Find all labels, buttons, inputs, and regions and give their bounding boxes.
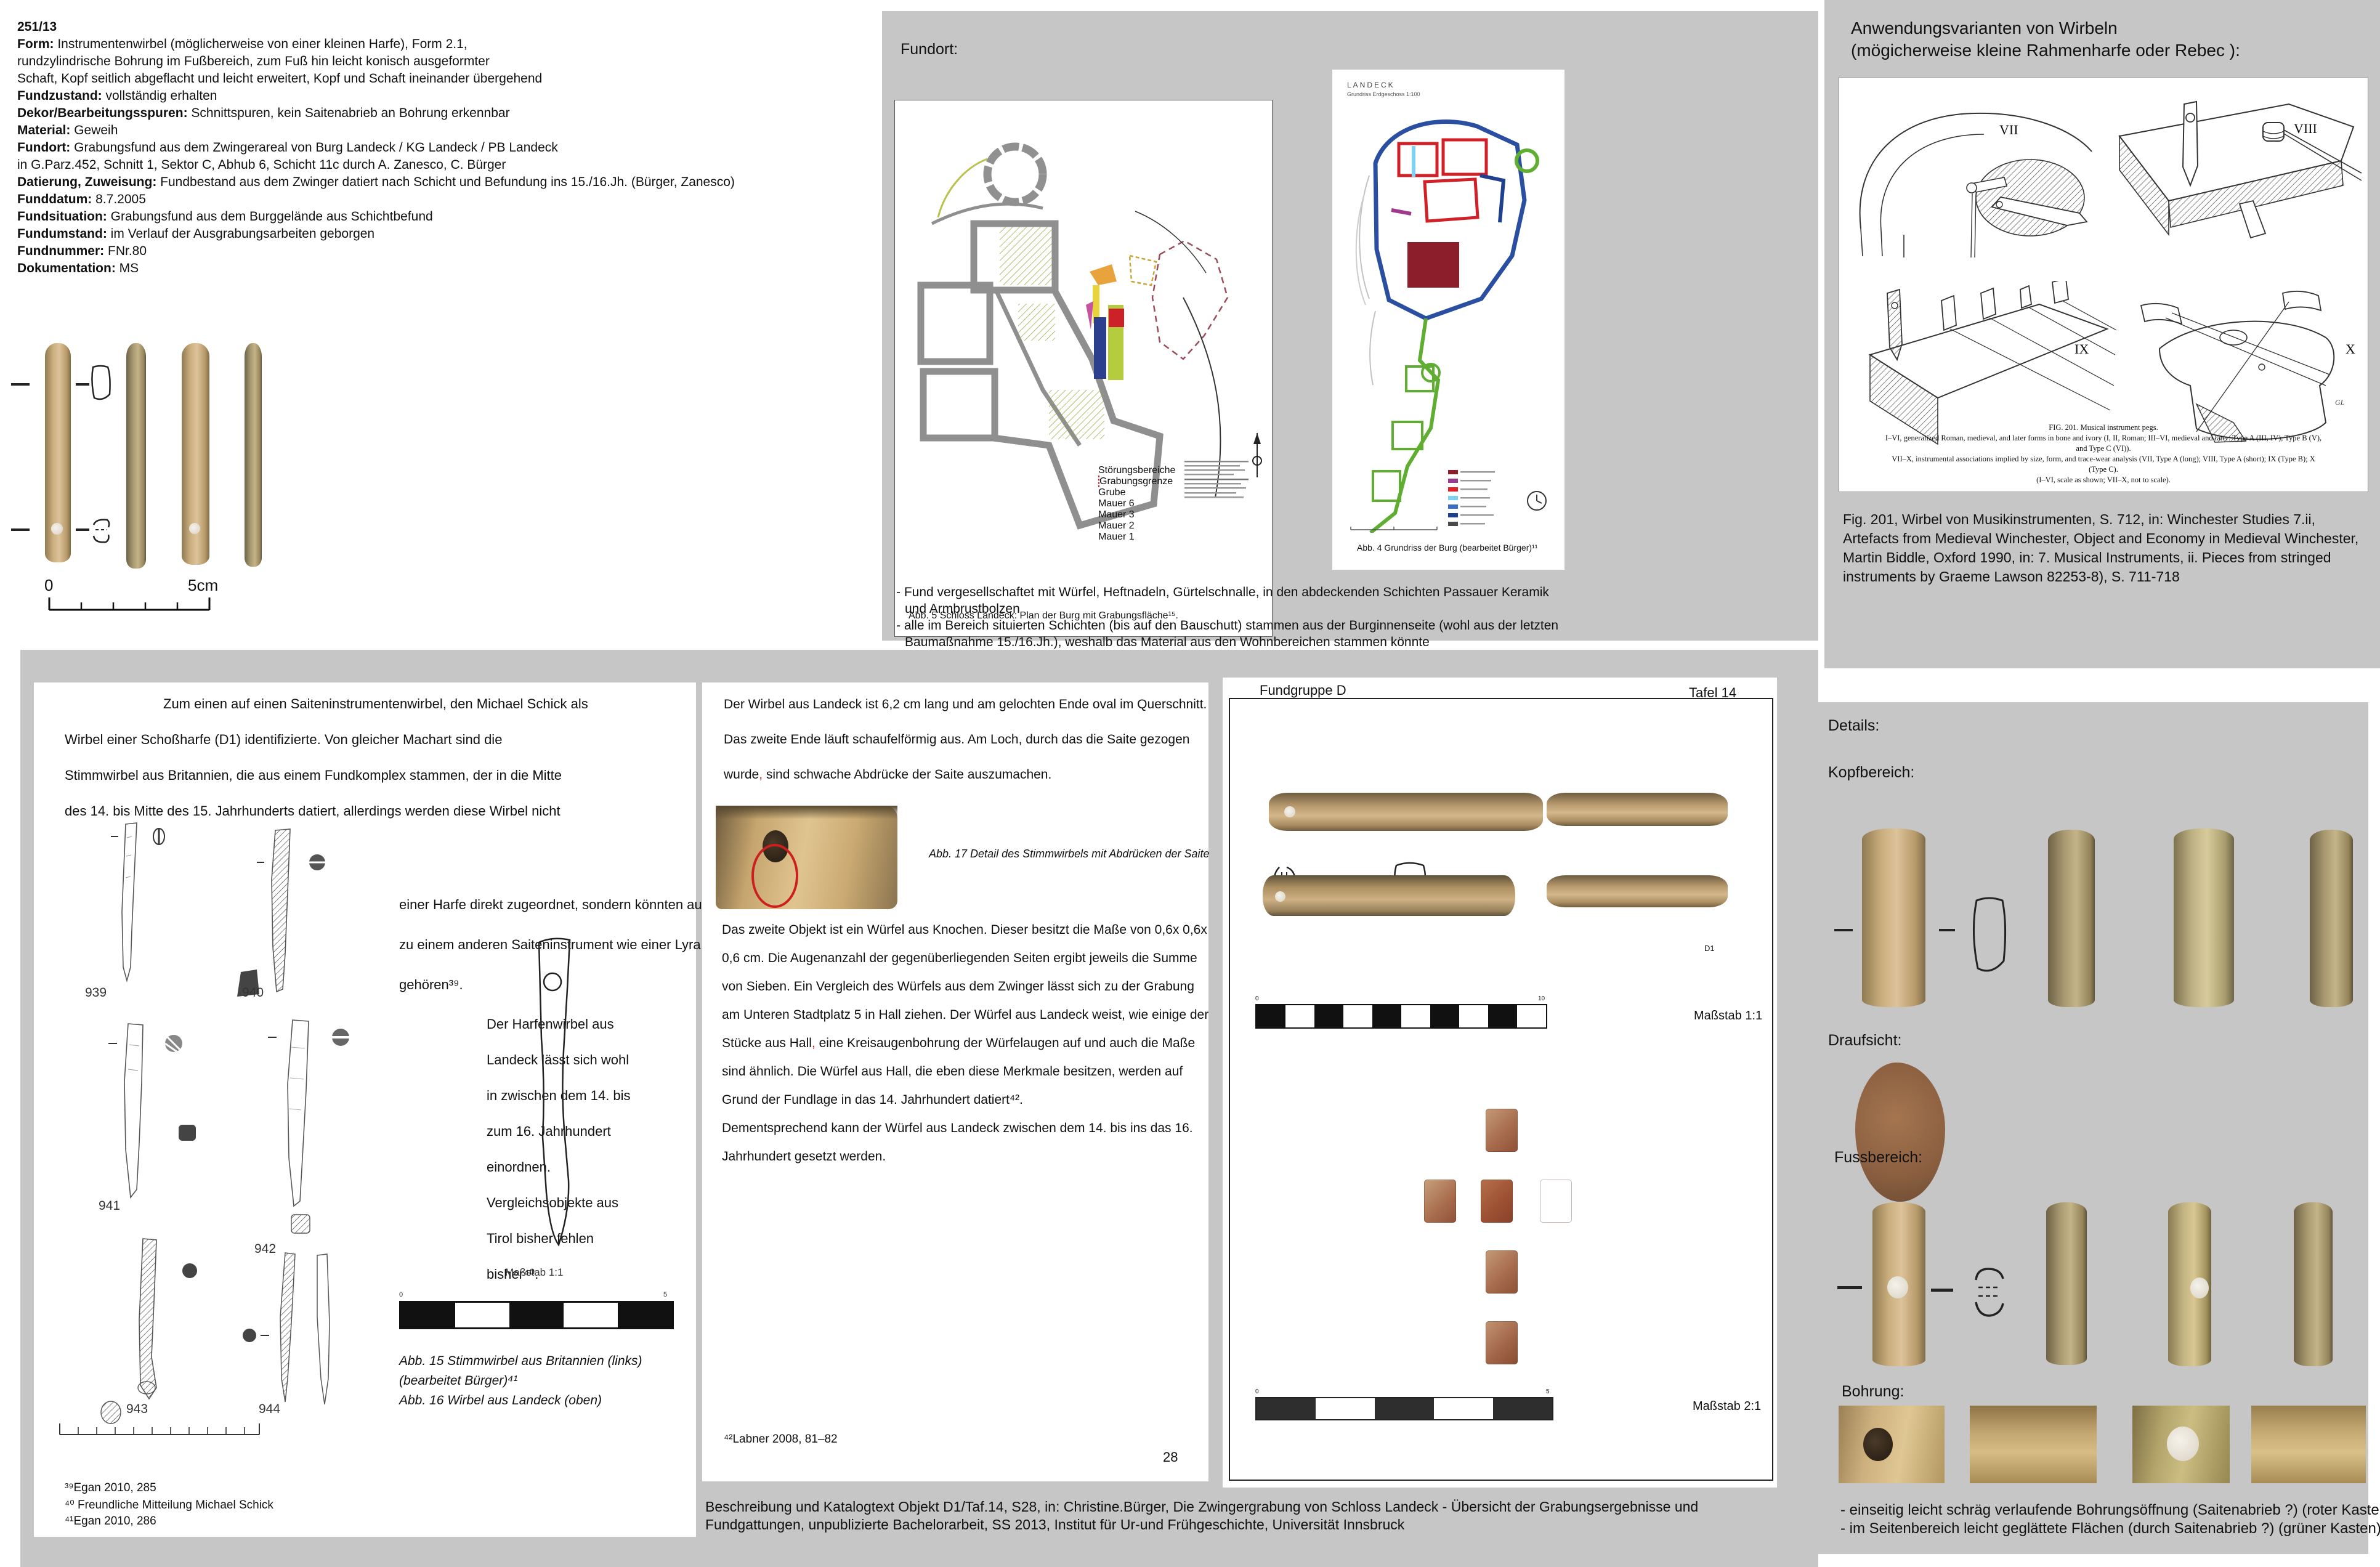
bar-seg — [1434, 1398, 1493, 1419]
kopf-photo-3 — [2174, 828, 2234, 1007]
numeral-x: X — [2346, 341, 2355, 357]
legend-item: Mauer 3 — [1098, 509, 1209, 520]
drawing-label-943: 943 — [126, 1402, 148, 1417]
bottom-caption: Beschreibung und Katalogtext Objekt D1/T… — [705, 1498, 1698, 1534]
fig-caption-line: (I–VI, scale as shown; VII–X, not to sca… — [1839, 475, 2368, 485]
fig-caption-line: FIG. 201. Musical instrument pegs. — [1839, 423, 2368, 433]
bohrung-label: Bohrung: — [1842, 1383, 1904, 1401]
kopfbereich-label: Kopfbereich: — [1828, 764, 1914, 782]
bar-seg — [1459, 1005, 1488, 1027]
photo-scale-ruler — [48, 596, 213, 615]
paragraph-line: gehören³⁹. — [399, 977, 463, 993]
credit-line: Artefacts from Medieval Winchester, Obje… — [1843, 529, 2358, 548]
tafel-scale-bar-2 — [1255, 1397, 1553, 1420]
drawing-944 — [231, 1249, 354, 1422]
bohrung-photo-1 — [1839, 1406, 1945, 1483]
peg-photo-front — [45, 343, 71, 562]
details-note-1: - einseitig leicht schräg verlaufende Bo… — [1840, 1502, 2380, 1519]
paragraph-line: am Unteren Stadtplatz 5 in Hall ziehen. … — [722, 1008, 1208, 1022]
bar-seg — [1316, 1398, 1375, 1419]
paragraph-line: von Sieben. Ein Vergleich des Würfels au… — [722, 979, 1194, 994]
catalog-line: Fundnummer: FNr.80 — [17, 243, 735, 260]
tafel-scale-bar-1 — [1255, 1004, 1547, 1029]
section-dash — [1931, 1289, 1953, 1292]
legend-item: Grube — [1098, 487, 1209, 498]
bar-seg — [618, 1303, 672, 1327]
photo-edge-shadow — [716, 806, 897, 819]
catalog-line: in G.Parz.452, Schnitt 1, Sektor C, Abhu… — [17, 156, 735, 174]
catalog-line: Fundort: Grabungsfund aus dem Zwingerare… — [17, 139, 735, 156]
bullet-line: Baumaßnahme 15./16.Jh.), weshalb das Mat… — [896, 634, 1558, 650]
figure-highlight-box — [1842, 108, 2362, 267]
credit-line: Martin Biddle, Oxford 1990, in: 7. Music… — [1843, 548, 2358, 567]
fuss-photo-4 — [2294, 1202, 2333, 1366]
catalog-line: Fundzustand: vollständig erhalten — [17, 87, 735, 105]
small-ruler — [59, 1419, 262, 1438]
die-face-4 — [1486, 1250, 1518, 1294]
catalog-line: 251/13 — [17, 18, 735, 36]
bar1-zero: 0 — [1255, 995, 1259, 1002]
fig-caption-line: VII–X, instrumental associations implied… — [1839, 454, 2368, 464]
catalog-line: Material: Geweih — [17, 122, 735, 139]
die-face-1 — [1481, 1180, 1513, 1223]
masstab-1-1-label: Maßstab 1:1 — [1694, 1009, 1762, 1023]
catalog-line: rundzylindrische Bohrung im Fußbereich, … — [17, 53, 735, 70]
head-section-drawing — [88, 363, 113, 404]
abb5-plan-figure: Störungsbereiche Grabungsgrenze Grube Ma… — [894, 100, 1273, 637]
die-face-5 — [1424, 1180, 1456, 1223]
foot-section-drawing — [90, 516, 112, 546]
clock-icon — [1528, 492, 1546, 510]
section-dash — [1939, 929, 1955, 931]
peg-photo-horizontal-3 — [1263, 875, 1515, 916]
catalog-text-block: 251/13 Form: Instrumentenwirbel (möglich… — [17, 18, 735, 277]
catalog-line: Dokumentation: MS — [17, 260, 735, 277]
paragraph-line: sind ähnlich. Die Würfel aus Hall, die e… — [722, 1064, 1183, 1079]
bar-seg — [401, 1303, 455, 1327]
bar-seg — [1257, 1005, 1285, 1027]
abb4-title: LANDECK — [1347, 81, 1395, 89]
paragraph-line: Stimmwirbel aus Britannien, die aus eine… — [65, 767, 562, 783]
peg-photo-horizontal-4 — [1547, 875, 1728, 907]
bar-seg — [1517, 1005, 1546, 1027]
fuss-photo-3 — [2168, 1202, 2211, 1366]
bar-five: 5 — [663, 1291, 667, 1298]
catalog-line: Form: Instrumentenwirbel (möglicherweise… — [17, 36, 735, 53]
bar-seg — [1493, 1398, 1552, 1419]
bohrung-photo-4 — [2251, 1406, 2366, 1483]
abb4-legend — [1448, 470, 1495, 526]
left-text-panel: Zum einen auf einen Saiteninstrumentenwi… — [34, 682, 696, 1537]
compass-icon — [1253, 433, 1261, 477]
abb4-plan-drawing — [1332, 102, 1564, 533]
die-face-6 — [1486, 1321, 1518, 1364]
abb17-photo — [716, 806, 897, 909]
bar-seg — [1430, 1005, 1459, 1027]
fuss-photo-2 — [2046, 1202, 2087, 1365]
round-tower — [987, 147, 1043, 202]
fundort-label: Fundort: — [901, 41, 958, 59]
numeral-viii: VIII — [2294, 121, 2317, 137]
drawing-943 — [92, 1234, 222, 1425]
footnote-rule — [702, 682, 887, 684]
peg-hole — [1284, 806, 1295, 817]
bar-seg — [1488, 1005, 1517, 1027]
bar-seg — [455, 1303, 509, 1327]
abb16-caption: Abb. 16 Wirbel aus Landeck (oben) — [399, 1393, 602, 1408]
object-photo-group: 0 5cm — [0, 326, 320, 616]
paragraph-line: wurde, sind schwache Abdrücke der Saite … — [724, 767, 1051, 782]
drawing-landeck-peg — [520, 934, 591, 1257]
legend-item: Mauer 2 — [1098, 520, 1209, 532]
bohrung-photo-2 — [1970, 1406, 2097, 1483]
scale-zero-label: 0 — [44, 576, 53, 595]
drawing-939 — [86, 819, 179, 989]
tafel-page: Fundgruppe D Tafel 14 D1 0 10 — [1223, 678, 1777, 1488]
winchester-figure: VII VIII IX X GL FIG. 201. Musical instr… — [1839, 77, 2368, 492]
peg-hole — [1887, 1276, 1908, 1298]
bar-seg — [564, 1303, 618, 1327]
kopf-photo-2 — [2048, 830, 2095, 1007]
green-box-annotation — [1970, 1406, 2072, 1468]
bohrung-photo-3 — [2132, 1406, 2230, 1483]
peg-hole — [2190, 1277, 2209, 1298]
drawing-label-944: 944 — [259, 1402, 280, 1417]
section-dash — [76, 528, 89, 531]
legend-item: Mauer 1 — [1098, 532, 1209, 543]
fuss-photo-1 — [1872, 1202, 1925, 1366]
credit-line: instruments by Graeme Lawson 82253-8), S… — [1843, 567, 2358, 586]
details-note-2: - im Seitenbereich leicht geglättete Flä… — [1840, 1520, 2380, 1537]
paragraph-line: Das zweite Objekt ist ein Würfel aus Kno… — [722, 923, 1207, 937]
green-box-annotation — [2251, 1406, 2345, 1467]
fundort-bullets: - Fund vergesellschaftet mit Würfel, Hef… — [896, 584, 1558, 650]
peg-photo-back — [182, 343, 209, 565]
abb15-caption-line1: Abb. 15 Stimmwirbel aus Britannien (link… — [399, 1354, 642, 1369]
footnote-40: ⁴⁰ Freundliche Mitteilung Michael Schick — [65, 1498, 273, 1512]
drawing-941 — [86, 1020, 209, 1205]
drawing-942 — [237, 1016, 373, 1238]
paragraph-line: einer Harfe direkt zugeordnet, sondern k… — [399, 897, 716, 913]
document-page: 251/13 Form: Instrumentenwirbel (möglich… — [0, 0, 2380, 1567]
numeral-vii: VII — [1999, 122, 2018, 138]
draufsicht-photo — [1855, 1063, 1945, 1202]
drawing-label-940: 940 — [242, 986, 264, 1000]
abb15-caption-line2: (bearbeitet Bürger)⁴¹ — [399, 1374, 517, 1388]
tafel-header-left: Fundgruppe D — [1260, 682, 1346, 698]
anwendung-title-line1: Anwendungsvarianten von Wirbeln — [1851, 18, 2118, 38]
section-dash — [11, 383, 30, 386]
bar2-zero: 0 — [1255, 1388, 1259, 1395]
paragraph-line: Jahrhundert gesetzt werden. — [722, 1149, 886, 1164]
numeral-ix: IX — [2074, 341, 2089, 357]
middle-text-panel: Der Wirbel aus Landeck ist 6,2 cm lang u… — [702, 682, 1208, 1481]
scale-5cm-label: 5cm — [188, 576, 218, 595]
bar2-five: 5 — [1546, 1388, 1550, 1395]
paragraph-line: des 14. bis Mitte des 15. Jahrhunderts d… — [65, 803, 561, 819]
abb5-legend: Störungsbereiche Grabungsgrenze Grube Ma… — [1098, 465, 1209, 543]
bar1-ten: 10 — [1538, 995, 1545, 1002]
catalog-line: Funddatum: 8.7.2005 — [17, 191, 735, 208]
abb4-caption: Abb. 4 Grundriss der Burg (bearbeitet Bü… — [1357, 543, 1537, 553]
paragraph-line: Grund der Fundlage in das 14. Jahrhunder… — [722, 1093, 1023, 1107]
peg-photo-side2 — [245, 343, 262, 567]
fundort-panel: Fundort: — [882, 11, 1818, 641]
kopf-photo-4 — [2310, 830, 2353, 1007]
bullet-line: - alle im Bereich situierten Schichten (… — [896, 617, 1558, 634]
peg-hole — [1275, 891, 1285, 902]
footnote-41: ⁴¹Egan 2010, 286 — [65, 1515, 156, 1528]
paragraph-line: Der Wirbel aus Landeck ist 6,2 cm lang u… — [724, 697, 1207, 712]
section-dash — [76, 383, 89, 386]
anwendung-title-line2: (mögicherweise kleine Rahmenharfe oder R… — [1851, 41, 2240, 60]
fussbereich-label: Fussbereich: — [1834, 1149, 1922, 1167]
fuss-section-outline — [1970, 1264, 2009, 1321]
figure-credit-block: Fig. 201, Wirbel von Musikinstrumenten, … — [1843, 510, 2358, 586]
red-circle-annotation — [751, 844, 798, 908]
artist-signature: GL — [2335, 398, 2344, 407]
footnote-39: ³⁹Egan 2010, 285 — [65, 1481, 156, 1495]
draufsicht-label: Draufsicht: — [1828, 1032, 1901, 1050]
fig-caption-line: and Type C (VI)). — [1839, 443, 2368, 454]
bar-seg — [1314, 1005, 1343, 1027]
section-dash — [1834, 929, 1853, 931]
abb4-plan-figure: LANDECK Grundriss Erdgeschoss 1:100 — [1332, 70, 1564, 570]
bohrung-hole — [1863, 1428, 1893, 1461]
paragraph-line: Dementsprechend kann der Würfel aus Land… — [722, 1121, 1193, 1136]
bar-seg — [1285, 1005, 1314, 1027]
drawing-940 — [200, 824, 342, 1003]
details-panel: Details: Kopfbereich: Draufsicht: Fussbe… — [1817, 702, 2368, 1554]
bar-seg — [1372, 1005, 1401, 1027]
catalog-line: Schaft, Kopf seitlich abgeflacht und lei… — [17, 70, 735, 87]
page-number: 28 — [1163, 1449, 1178, 1465]
section-dash — [1837, 1286, 1862, 1289]
legend-item: Mauer 6 — [1098, 498, 1209, 509]
bar-seg — [1257, 1398, 1316, 1419]
paragraph-line: Stücke aus Hall, eine Kreisaugenbohrung … — [722, 1036, 1195, 1051]
legend-item: Störungsbereiche — [1098, 465, 1209, 476]
paragraph-line: Das zweite Ende läuft schaufelförmig aus… — [724, 732, 1189, 747]
figure-caption-block: FIG. 201. Musical instrument pegs. I–VI,… — [1839, 423, 2368, 485]
catalog-line: Datierung, Zuweisung: Fundbestand aus de… — [17, 174, 735, 191]
footnote-rule — [34, 682, 243, 684]
fig-caption-line: I–VI, generalized Roman, medieval, and l… — [1839, 433, 2368, 443]
abb4-subtitle: Grundriss Erdgeschoss 1:100 — [1347, 91, 1420, 97]
bottom-caption-line2: Fundgattungen, unpublizierte Bachelorarb… — [705, 1516, 1698, 1534]
credit-line: Fig. 201, Wirbel von Musikinstrumenten, … — [1843, 510, 2358, 529]
kopf-section-outline — [1967, 894, 2011, 979]
die-face-2 — [1540, 1180, 1572, 1223]
footnote-42: ⁴²Labner 2008, 81–82 — [724, 1433, 838, 1446]
object-id-label: D1 — [1704, 944, 1715, 953]
masstab-2-1-label: Maßstab 2:1 — [1693, 1399, 1761, 1414]
masstab-label: Maßstab 1:1 — [505, 1266, 564, 1279]
drawing-label-941: 941 — [99, 1199, 120, 1213]
checker-scale-bar — [399, 1301, 674, 1329]
catalog-line: Dekor/Bearbeitungsspuren: Schnittspuren,… — [17, 105, 735, 122]
legend-item: Grabungsgrenze — [1098, 476, 1209, 487]
bullet-line: und Armbrustbolzen — [896, 601, 1558, 617]
excavation-highlight-box — [1082, 243, 1183, 397]
peg-photo-horizontal-2 — [1547, 793, 1728, 826]
bullet-line: - Fund vergesellschaftet mit Würfel, Hef… — [896, 584, 1558, 601]
drawing-label-939: 939 — [85, 986, 107, 1000]
bar-seg — [509, 1303, 564, 1327]
paragraph-line: Zum einen auf einen Saiteninstrumentenwi… — [163, 696, 588, 712]
bar-seg — [1401, 1005, 1430, 1027]
bar-zero: 0 — [399, 1291, 403, 1298]
catalog-line: Fundumstand: im Verlauf der Ausgrabungsa… — [17, 225, 735, 243]
paragraph-line: 0,6 cm. Die Augenanzahl der gegenüberlie… — [722, 951, 1197, 966]
abb17-caption: Abb. 17 Detail des Stimmwirbels mit Abdr… — [929, 848, 1210, 860]
catalog-line: Fundsituation: Grabungsfund aus dem Burg… — [17, 208, 735, 225]
peg-hole — [189, 523, 200, 534]
peg-photo-side — [126, 343, 146, 569]
paragraph-line: Wirbel einer Schoßharfe (D1) identifizie… — [65, 732, 502, 748]
bohrung-hole-through — [2167, 1427, 2199, 1461]
peg-hole — [51, 523, 63, 535]
kopf-photo-1 — [1862, 828, 1925, 1007]
bottom-caption-line1: Beschreibung und Katalogtext Objekt D1/T… — [705, 1498, 1698, 1516]
details-title: Details: — [1828, 717, 1879, 735]
bar-seg — [1343, 1005, 1372, 1027]
bar-seg — [1375, 1398, 1434, 1419]
die-face-3 — [1486, 1109, 1518, 1152]
anwendung-panel: Anwendungsvarianten von Wirbeln (mögiche… — [1824, 0, 2380, 668]
fig-caption-line: (Type C). — [1839, 464, 2368, 475]
section-dash — [11, 528, 30, 531]
peg-photo-horizontal-1 — [1269, 793, 1543, 831]
